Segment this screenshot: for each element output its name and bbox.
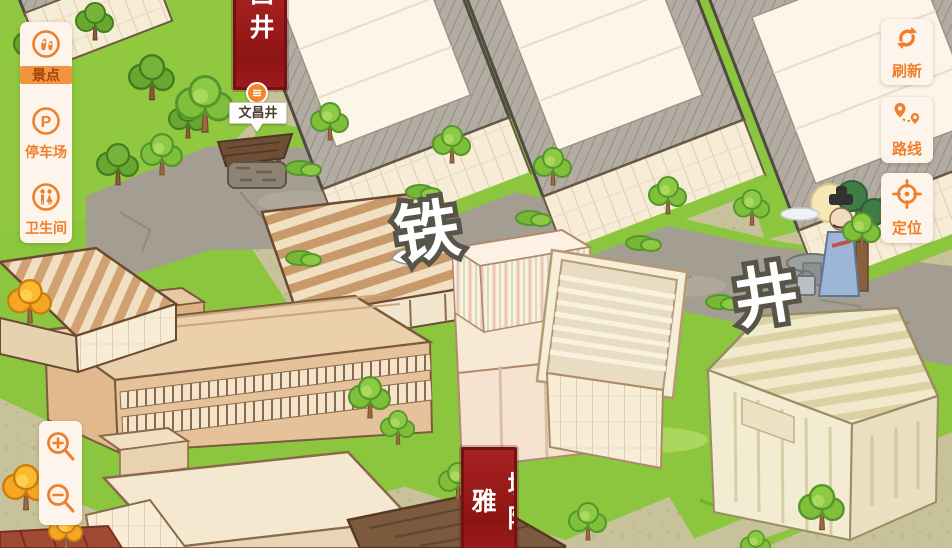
- poi-banner: 昌井: [233, 0, 287, 90]
- route-label: 路线: [892, 138, 922, 159]
- parking-icon: P: [31, 106, 61, 136]
- poi-marker-icon: [252, 88, 262, 98]
- locate-button[interactable]: 定位: [881, 173, 933, 243]
- restroom-icon: [31, 182, 61, 212]
- bottom-banner-text: 城隍雅: [464, 454, 517, 548]
- sidebar-label-restroom: 卫生间: [20, 219, 72, 237]
- refresh-icon: [892, 23, 922, 58]
- route-icon: [891, 101, 923, 136]
- street-char-jing: 井: [729, 255, 803, 336]
- sidebar-label-scenic-spots: 景点: [20, 66, 72, 84]
- zoom-in-icon: [44, 430, 78, 464]
- scenic-spot-icon: [31, 29, 61, 59]
- zoom-out-button[interactable]: [43, 481, 79, 517]
- left-sidebar: 景点 P 停车场 卫生间: [20, 22, 72, 243]
- zoom-in-button[interactable]: [43, 429, 79, 465]
- poi-marker[interactable]: [246, 82, 268, 104]
- sidebar-item-scenic-spots[interactable]: 景点: [20, 29, 72, 84]
- route-button[interactable]: 路线: [881, 97, 933, 163]
- well-illustration: [218, 134, 292, 188]
- sidebar-item-restroom[interactable]: 卫生间: [20, 182, 72, 237]
- poi-pointer: [251, 123, 263, 132]
- sidebar-item-parking[interactable]: P 停车场: [20, 106, 72, 161]
- sidebar-label-parking: 停车场: [20, 143, 72, 161]
- zoom-out-icon: [44, 482, 78, 516]
- refresh-button[interactable]: 刷新: [881, 19, 933, 85]
- locate-icon: [891, 178, 923, 215]
- svg-text:P: P: [41, 114, 52, 131]
- refresh-label: 刷新: [892, 60, 922, 81]
- scenic-map-app: 铁 井 昌井 文昌井 城隍雅 景点 P 停车场: [0, 0, 952, 548]
- street-char-tie: 铁: [390, 191, 464, 272]
- locate-label: 定位: [892, 217, 922, 238]
- poi-label[interactable]: 文昌井: [229, 102, 287, 124]
- bottom-banner: 城隍雅: [461, 447, 517, 548]
- zoom-controls: [39, 421, 82, 525]
- poi-banner-text: 昌井: [242, 0, 278, 48]
